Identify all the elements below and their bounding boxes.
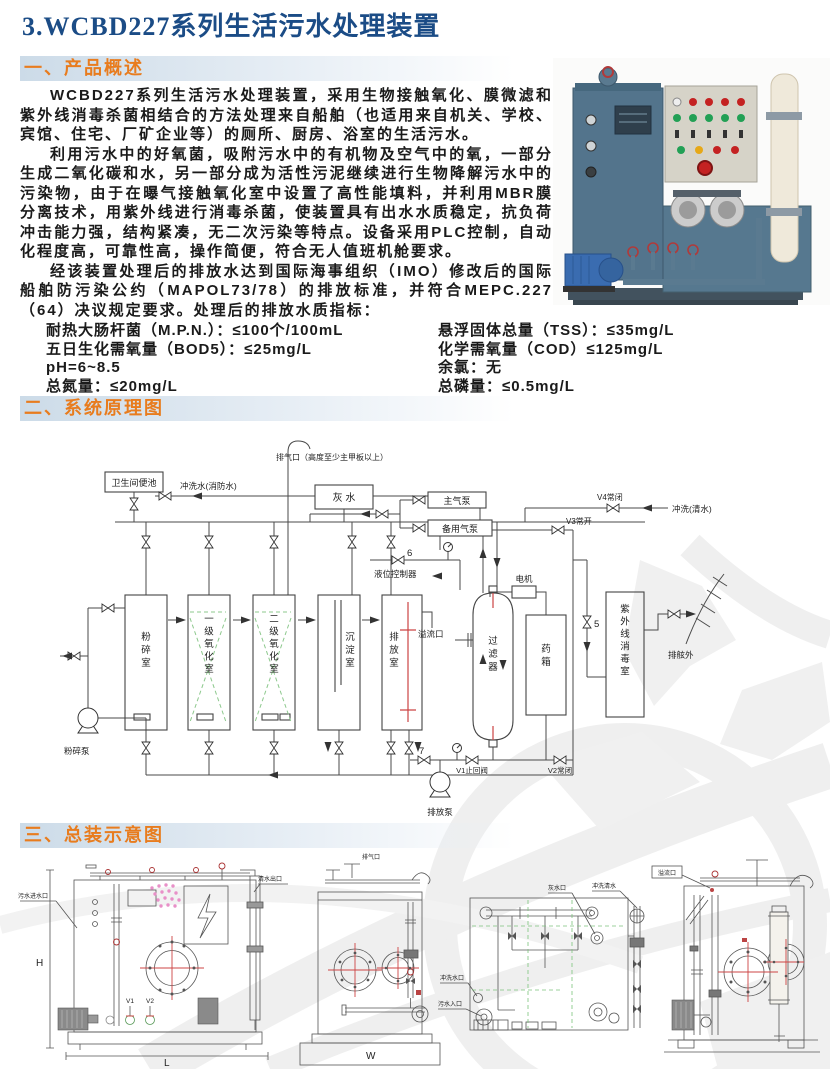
section-heading-assembly: 三、总装示意图 [20, 823, 514, 848]
assembly-drawings: H L 污水进水口 清水出口 V1 V2 [0, 850, 830, 1069]
tank-ox1-label: 一级氧化室 [204, 614, 214, 675]
discharge-pump-symbol [430, 772, 450, 797]
overview-paragraph-1: WCBD227系列生活污水处理装置，采用生物接触氧化、膜微滤和紫外线消毒杀菌相结… [20, 86, 553, 145]
level-controller-label: 液位控制器 [374, 569, 417, 579]
spec-item: 耐热大肠杆菌（M.P.N.）：≤100个/100mL [46, 322, 438, 341]
gray-port-label: 灰水口 [548, 884, 566, 892]
uv-room-label: 紫外线消毒室 [620, 604, 630, 678]
overview-paragraph-3: 经该装置处理后的排放水达到国际海事组织（IMO）修改后的国际船舶防污染公约（MA… [20, 262, 553, 321]
exhaust-label: 排气口（高度至少主甲板以上） [276, 452, 388, 462]
sewage-inlet-label: 污水进水口 [18, 892, 48, 900]
spec-list-left: 耐热大肠杆菌（M.P.N.）：≤100个/100mL 五日生化需氧量（BOD5）… [46, 322, 438, 396]
filter-label: 过滤器 [488, 635, 498, 673]
backup-air-pump-label: 备用气泵 [442, 523, 478, 534]
vent-label: 排气口 [362, 853, 380, 861]
sewage-inlet-port-label: 污水入口 [438, 1000, 462, 1008]
v1-tag: V1 [126, 998, 134, 1005]
valves [68, 492, 680, 764]
gray-water-label: 灰 水 [333, 491, 356, 504]
clean-outlet-label: 清水出口 [258, 875, 282, 883]
section-heading-overview: 一、产品概述 [20, 56, 514, 81]
crush-pump-label: 粉碎泵 [64, 746, 90, 756]
motor-box [512, 586, 536, 598]
assembly-side-view: 排气口 W 冲洗水口 污水入口 [300, 853, 481, 1065]
overflow-port-label: 溢流口 [658, 869, 676, 877]
spec-item: 化学需氧量（COD）≤125mg/L [438, 341, 674, 360]
v1-label: V1止回阀 [456, 765, 488, 775]
motor-label: 电机 [515, 574, 533, 584]
spec-item: 余氯：无 [438, 359, 674, 378]
spec-item: 悬浮固体总量（TSS）：≤35mg/L [438, 322, 674, 341]
v3-label: V3常开 [566, 517, 592, 526]
v2-tag: V2 [146, 998, 154, 1005]
flush-port-label: 冲洗水口 [440, 974, 464, 982]
flush-clean-label: 冲洗(清水) [672, 504, 712, 514]
assembly-top-view: 灰水口 冲洗清水 [470, 882, 644, 1030]
pink-dots [150, 883, 180, 907]
overflow-label: 溢流口 [418, 629, 444, 639]
vessels [105, 472, 644, 747]
valve-7-label: 7 [419, 746, 424, 757]
spec-item: 总磷量：≤0.5mg/L [438, 378, 674, 397]
overview-paragraph-2: 利用污水中的好氧菌，吸附污水中的有机物及空气中的氧，一部分生成二氧化碳和水，另一… [20, 145, 553, 262]
dim-w-label: W [366, 1051, 376, 1062]
flush-fire-label: 冲洗水(消防水) [180, 481, 237, 491]
main-air-pump-label: 主气泵 [443, 495, 470, 506]
discharge-spec-table: 耐热大肠杆菌（M.P.N.）：≤100个/100mL 五日生化需氧量（BOD5）… [20, 322, 786, 396]
toilet-label: 卫生间便池 [111, 477, 156, 488]
system-schematic-diagram: 排气口（高度至少主甲板以上） 卫生间便池 冲洗水(消防水) 灰 水 主气泵 备用… [20, 430, 815, 822]
tank-sed-label: 沉淀室 [345, 632, 355, 669]
overboard-label: 排舷外 [668, 650, 694, 660]
spec-item: 五日生化需氧量（BOD5）：≤25mg/L [46, 341, 438, 360]
section-heading-schematic: 二、系统原理图 [20, 396, 514, 421]
membrane-tube [771, 74, 798, 262]
dim-l-label: L [164, 1058, 170, 1069]
valve-6-label: 6 [407, 548, 412, 559]
product-photo [553, 58, 830, 305]
valve-5-label: 5 [594, 619, 599, 630]
chem-tank-label: 药箱 [541, 644, 551, 668]
tank-crush-label: 粉碎室 [141, 631, 151, 669]
spec-item: pH=6~8.5 [46, 359, 438, 378]
page-title: 3.WCBD227系列生活污水处理装置 [22, 6, 440, 43]
assembly-side-view-2: 溢流口 [652, 860, 820, 1052]
gauges [444, 543, 462, 753]
v2-label: V2常闭 [548, 766, 572, 775]
assembly-front-view: H L 污水进水口 清水出口 V1 V2 [18, 863, 288, 1069]
discharge-pump-label: 排放泵 [427, 807, 453, 817]
crush-pump-symbol [78, 708, 98, 733]
spec-item: 总氮量：≤20mg/L [46, 378, 438, 397]
flow-arrows [62, 493, 696, 779]
flush-clean-water-label: 冲洗清水 [592, 882, 616, 890]
tank-ox2-label: 二级氧化室 [269, 614, 279, 675]
spec-list-right: 悬浮固体总量（TSS）：≤35mg/L 化学需氧量（COD）≤125mg/L 余… [438, 322, 674, 396]
level-indicator-lines [400, 593, 493, 740]
v4-label: V4常闭 [597, 493, 623, 502]
page: 3.WCBD227系列生活污水处理装置 一、产品概述 WCBD227系列生活污水… [0, 0, 830, 1069]
tank-dis-label: 排放室 [389, 631, 399, 669]
dim-h-label: H [36, 958, 43, 969]
